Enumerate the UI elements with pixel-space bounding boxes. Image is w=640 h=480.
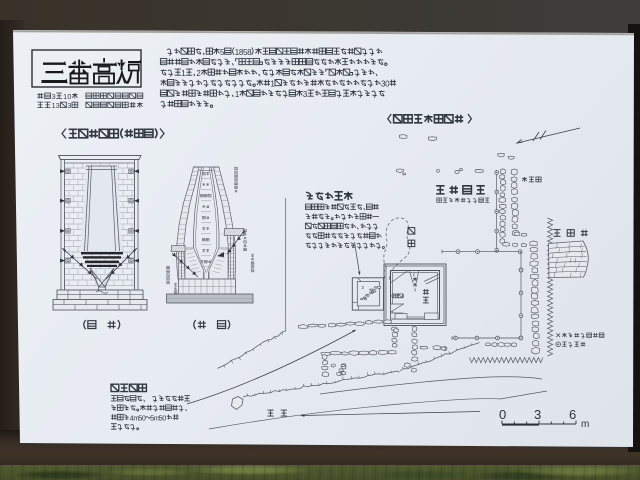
svg-text:0: 0: [67, 92, 71, 101]
svg-text:3: 3: [67, 101, 71, 110]
svg-text:3: 3: [534, 407, 541, 422]
svg-text:6: 6: [569, 407, 576, 422]
svg-text:0: 0: [499, 407, 506, 422]
svg-text:2: 2: [196, 69, 201, 78]
svg-text:3: 3: [362, 285, 365, 290]
svg-text:8: 8: [247, 48, 252, 57]
svg-text:3: 3: [56, 101, 60, 110]
svg-text:m: m: [581, 419, 589, 430]
svg-text:3: 3: [303, 90, 308, 99]
svg-text:1: 1: [235, 90, 240, 99]
svg-text:1: 1: [181, 69, 186, 78]
svg-text:3: 3: [52, 92, 56, 101]
svg-text:0: 0: [162, 413, 166, 422]
svg-text:0: 0: [142, 413, 146, 422]
svg-text:0: 0: [385, 79, 390, 88]
